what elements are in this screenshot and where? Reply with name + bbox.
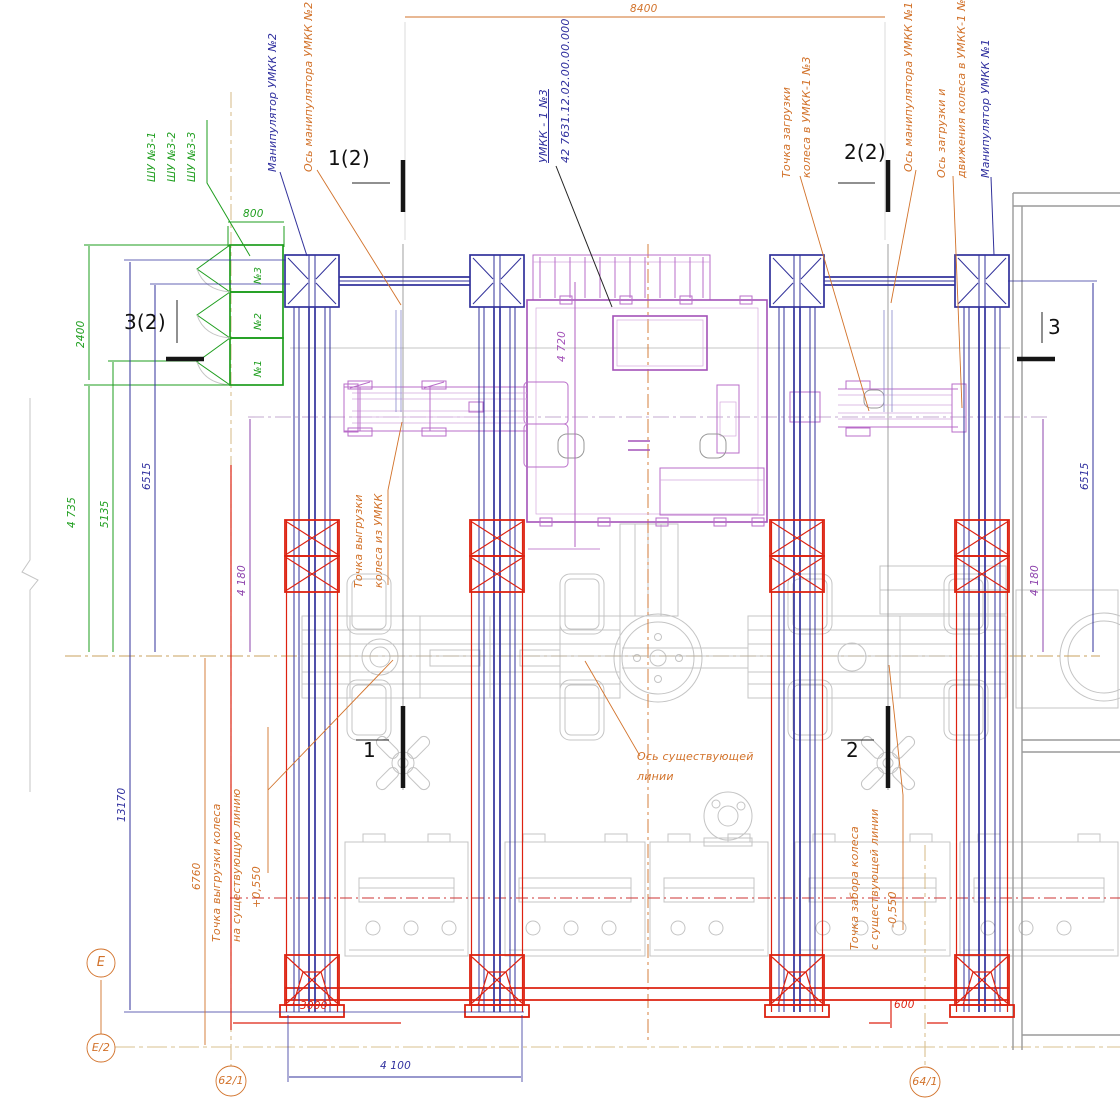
label-axis-load-line2: движения колеса в УМКК-1 №3 — [955, 0, 968, 178]
dim-8400: 8400 — [630, 3, 658, 15]
dim-6760: 6760 — [191, 862, 203, 890]
label-axis-load-line1: Ось загрузки и — [935, 88, 948, 178]
label-umkk-name: УМКК - 1 №3 — [537, 89, 550, 163]
dim-4180-left: 4 180 — [236, 565, 248, 596]
label-pickup-exist-line2: с существующей линии — [868, 809, 881, 950]
section-1-2: 1(2) — [328, 146, 370, 170]
section-1: 1 — [363, 738, 376, 762]
cabinet-1-label: №1 — [253, 360, 264, 377]
dim-5135: 5135 — [99, 500, 111, 528]
wall — [283, 234, 1120, 241]
manipulator-1-arm — [790, 381, 966, 436]
dim-4100: 4 100 — [380, 1060, 411, 1072]
grid-axis-b21: 62/1 — [213, 1074, 249, 1087]
dim-4735: 4 735 — [66, 497, 78, 528]
label-shu-3-3: ШУ №3-3 — [186, 132, 198, 182]
label-unload-exist-line1: Точка выгрузки колеса — [210, 803, 223, 942]
dim-6515-right: 6515 — [1079, 462, 1091, 490]
wall-red-mark — [626, 234, 674, 241]
label-unload-exist-elev: +0,550 — [250, 866, 263, 908]
label-pickup-exist-line1: Точка забора колеса — [848, 826, 861, 950]
drawing-canvas: ШУ №3-1 ШУ №3-2 ШУ №3-3 Манипулятор УМКК… — [0, 0, 1120, 1099]
label-shu-3-1: ШУ №3-1 — [146, 132, 158, 182]
label-unload-umkk-line2: колеса из УМКК — [372, 493, 385, 588]
label-pickup-exist-elev: -0,550 — [886, 891, 899, 928]
grid-axis-e2: Е/2 — [84, 1041, 118, 1054]
grid-axis-b41: 64/1 — [907, 1075, 943, 1088]
dim-6515-left: 6515 — [141, 462, 153, 490]
label-axis-manipulator-1: Ось манипулятора УМКК №1 — [902, 2, 915, 172]
dim-600: 600 — [894, 999, 915, 1011]
label-load-point-line1: Точка загрузки — [780, 87, 793, 178]
dim-2400: 2400 — [75, 320, 87, 348]
section-3: 3 — [1048, 315, 1061, 339]
section-2: 2 — [846, 738, 859, 762]
umkk-machine — [344, 255, 966, 526]
label-manipulator-1: Манипулятор УМКК №1 — [979, 39, 992, 178]
dim-4180-right: 4 180 — [1029, 565, 1041, 596]
label-unload-exist-line2: на существующую линию — [230, 789, 243, 942]
label-umkk-code: 42 7631.12.02.00.00.000 — [559, 18, 572, 163]
dim-4720: 4 720 — [556, 331, 568, 362]
label-unload-umkk-line1: Точка выгрузки — [352, 494, 365, 588]
cabinet-3-label: №3 — [253, 267, 264, 284]
dim-800: 800 — [243, 208, 264, 220]
label-manipulator-2: Манипулятор УМКК №2 — [266, 33, 279, 172]
label-axis-manipulator-2: Ось манипулятора УМКК №2 — [302, 2, 315, 172]
dim-3000: 3000 — [300, 1000, 328, 1012]
cabinet-2-label: №2 — [253, 313, 264, 330]
section-3-2: 3(2) — [124, 310, 166, 334]
section-2-2: 2(2) — [844, 140, 886, 164]
dim-13170: 13170 — [116, 788, 128, 822]
control-cabinets — [197, 245, 283, 385]
label-shu-3-2: ШУ №3-2 — [166, 132, 178, 182]
grid-axis-e: Е — [84, 955, 118, 970]
label-axis-existing-line1: Ось существующей — [637, 750, 754, 763]
label-load-point-line2: колеса в УМКК-1 №3 — [800, 56, 813, 178]
label-axis-existing-line2: линии — [637, 770, 674, 783]
